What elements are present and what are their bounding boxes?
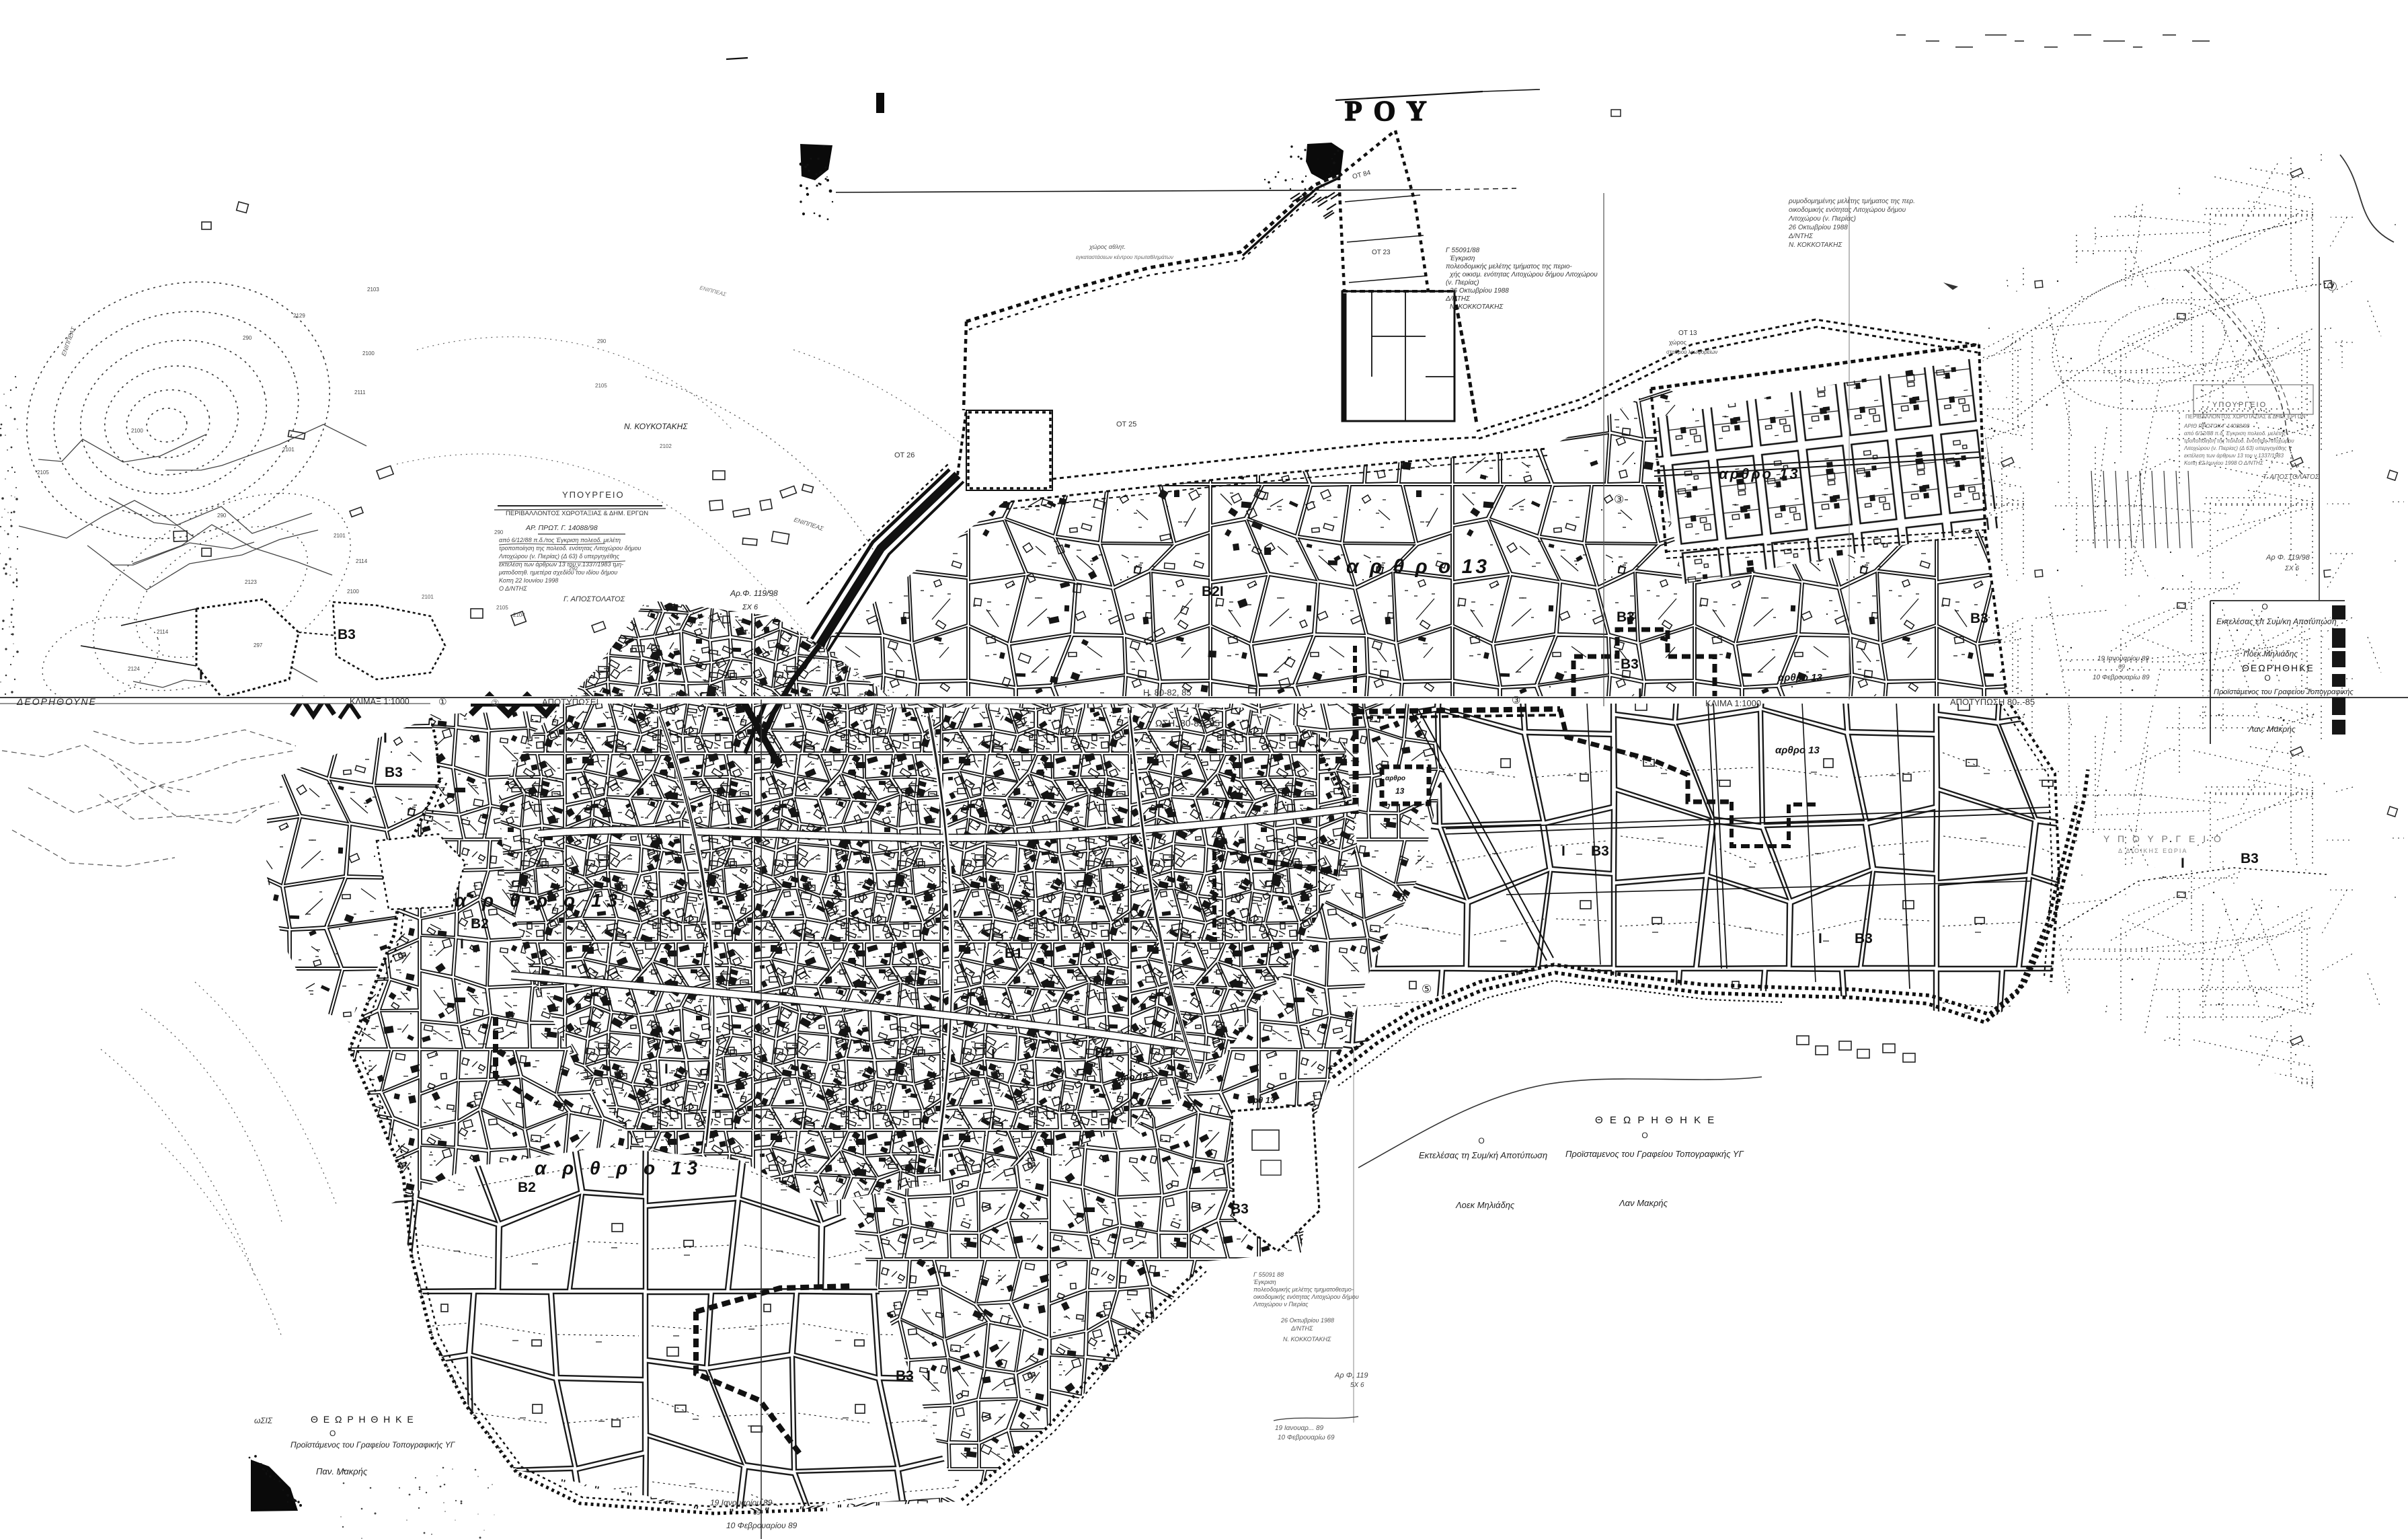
svg-text:2105: 2105: [496, 605, 508, 611]
svg-text:2101: 2101: [282, 447, 295, 453]
svg-text:10 Φεβρουαρίω 69: 10 Φεβρουαρίω 69: [1278, 1433, 1335, 1441]
svg-text:Β3: Β3: [1970, 611, 1988, 626]
svg-text:Ο: Ο: [329, 1429, 336, 1438]
svg-text:Αρ Φ, 119: Αρ Φ, 119: [1334, 1372, 1368, 1380]
svg-text:ΟΤ 26: ΟΤ 26: [894, 451, 915, 459]
svg-text:ΔΕΟΡΗΘΟΥΝΕ: ΔΕΟΡΗΘΟΥΝΕ: [16, 696, 97, 707]
svg-text:2100: 2100: [131, 428, 143, 434]
svg-text:ΟΤ 25: ΟΤ 25: [1116, 420, 1136, 428]
svg-text:Θ Ε Ω Ρ Η Θ Η Κ Ε: Θ Ε Ω Ρ Η Θ Η Κ Ε: [311, 1414, 415, 1425]
svg-text:69: 69: [2118, 663, 2125, 670]
svg-text:Δ/ΝΤΗΣ: Δ/ΝΤΗΣ: [1788, 233, 1814, 240]
svg-text:ΟΤ 13: ΟΤ 13: [1678, 330, 1697, 337]
svg-text:26 Οκτωβρίου 1988: 26 Οκτωβρίου 1988: [1788, 223, 1848, 231]
svg-text:290: 290: [243, 335, 252, 341]
svg-text:ματοδοτηθ. ημετέρα σχεδίου το: ματοδοτηθ. ημετέρα σχεδίου του ιδίου δήμ…: [498, 569, 617, 576]
svg-text:5Χ 6: 5Χ 6: [1350, 1382, 1364, 1389]
svg-text:ΣΧ 6: ΣΧ 6: [742, 603, 759, 611]
svg-text:Η. 80-82, 85: Η. 80-82, 85: [1143, 687, 1192, 698]
svg-text:26 Οκτωβρίου 1988: 26 Οκτωβρίου 1988: [1280, 1317, 1334, 1324]
svg-text:Λοεκ Μηλιάδης: Λοεκ Μηλιάδης: [1455, 1200, 1515, 1210]
svg-text:Β2: Β2: [471, 916, 489, 932]
svg-text:ρυμοδομημένης μελέτης τμήματος: ρυμοδομημένης μελέτης τμήματος της περ.: [1788, 197, 1915, 205]
svg-text:ΑΡ. ΠΡΩΤ. Γ. 14088/98: ΑΡ. ΠΡΩΤ. Γ. 14088/98: [525, 524, 598, 532]
svg-text:19 Ιανουαρ... 89: 19 Ιανουαρ... 89: [1275, 1425, 1324, 1432]
svg-text:Δ ΔΙΟΙΚΗΣ ΕΩΡΙΑ: Δ ΔΙΟΙΚΗΣ ΕΩΡΙΑ: [2118, 848, 2187, 854]
svg-text:αρθρο 13: αρθρο 13: [1719, 465, 1800, 482]
svg-text:Κοπη 22 Ιουνίου 1998: Κοπη 22 Ιουνίου 1998: [499, 577, 558, 584]
svg-text:αρθ 13: αρθ 13: [1247, 1095, 1276, 1105]
svg-text:χώρος αθλητ.: χώρος αθλητ.: [1089, 243, 1126, 250]
svg-text:2100: 2100: [362, 350, 375, 356]
svg-text:Κοπη 22 Ιουνίου 1998 Ο Δ/ΝΤΗΣ: Κοπη 22 Ιουνίου 1998 Ο Δ/ΝΤΗΣ: [2184, 460, 2264, 466]
svg-text:Β3: Β3: [1591, 843, 1609, 859]
svg-text:Προϊσταμενος του Γραφείου Τ: Προϊσταμενος του Γραφείου Τοπογραφικής Υ…: [1565, 1149, 1744, 1159]
svg-text:αρθρο 13: αρθρο 13: [1778, 672, 1823, 683]
svg-text:Β3: Β3: [2241, 851, 2259, 866]
svg-text:χώρος: χώρος: [1669, 339, 1687, 346]
svg-text:Προϊστάμενος του Γραφείου Τοπο: Προϊστάμενος του Γραφείου Τοπογραφικής Υ…: [290, 1440, 456, 1450]
svg-text:Γ 55091 88: Γ 55091 88: [1253, 1271, 1284, 1278]
svg-text:αρθρο 13: αρθρο 13: [1775, 745, 1820, 756]
svg-text:Τ. ΑΠΟΣΤΟΛΑΤΟΣ: Τ. ΑΠΟΣΤΟΛΑΤΟΣ: [2263, 474, 2320, 481]
svg-text:ΩΣΗ. 80-82, 85: ΩΣΗ. 80-82, 85: [1155, 718, 1220, 728]
svg-text:ΠΕΡΙΒΑΛΛΟΝΤΟΣ ΧΩΡΟΤΑΞΙΑΣ & ΔΗΜ: ΠΕΡΙΒΑΛΛΟΝΤΟΣ ΧΩΡΟΤΑΞΙΑΣ & ΔΗΜ. ΕΡΓΩΝ: [2185, 414, 2306, 420]
svg-text:2123: 2123: [245, 579, 257, 585]
svg-text:Αρ Φ. 119/98: Αρ Φ. 119/98: [2265, 554, 2310, 562]
svg-text:Προϊστάμενος του Γραφείου Τοπο: Προϊστάμενος του Γραφείου Τοπογραφικής: [2214, 688, 2354, 696]
svg-text:ΣΧ 6: ΣΧ 6: [2284, 565, 2299, 572]
svg-text:χής οικισμ. ενότητας Λιτοχώρου: χής οικισμ. ενότητας Λιτοχώρου δήμου Λιτ…: [1449, 270, 1598, 278]
svg-text:Ο Δ/ΝΤΗΣ: Ο Δ/ΝΤΗΣ: [499, 585, 527, 592]
svg-text:Β2Ι: Β2Ι: [1202, 584, 1224, 599]
svg-text:2124: 2124: [128, 666, 140, 672]
svg-text:③: ③: [1512, 695, 1520, 706]
svg-text:πολεοδομικής μελέτης τμηματοθε: πολεοδομικής μελέτης τμηματοθεσμο-: [1253, 1286, 1354, 1293]
svg-text:Ι: Ι: [383, 730, 387, 746]
svg-text:ΥΠΟΥΡΓΕΙΟ: ΥΠΟΥΡΓΕΙΟ: [562, 490, 625, 500]
svg-text:Β2: Β2: [518, 1180, 536, 1195]
svg-text:10 Φεβρουαρίω 89: 10 Φεβρουαρίω 89: [2093, 673, 2150, 681]
svg-text:Β3: Β3: [1617, 609, 1635, 625]
svg-text:Β3: Β3: [1231, 1201, 1249, 1217]
svg-text:ΑΠΟΤΥΠΩΣΗ 80-.-85: ΑΠΟΤΥΠΩΣΗ 80-.-85: [1950, 697, 2035, 707]
svg-text:ΟΤ 23: ΟΤ 23: [1372, 249, 1391, 256]
svg-text:Δ/ΝΤΗΣ: Δ/ΝΤΗΣ: [1445, 295, 1471, 303]
svg-text:Ι: Ι: [460, 936, 464, 952]
svg-text:⑦: ⑦: [2327, 280, 2337, 293]
svg-text:Β3: Β3: [896, 1368, 914, 1384]
svg-text:Θ Ε Ω Ρ Η Θ Η Κ Ε: Θ Ε Ω Ρ Η Θ Η Κ Ε: [1595, 1115, 1716, 1126]
svg-text:τροποποίηση της πολεοδ. ενότητ: τροποποίηση της πολεοδ. ενότητας Λιτοχώρ…: [2184, 438, 2294, 444]
svg-text:(ν. Πιερίας): (ν. Πιερίας): [1446, 278, 1479, 287]
svg-text:Β3: Β3: [1855, 931, 1873, 946]
svg-text:2129: 2129: [293, 313, 305, 319]
svg-text:2114: 2114: [157, 629, 169, 635]
svg-text:2100: 2100: [347, 589, 359, 595]
svg-text:③: ③: [1614, 493, 1624, 506]
svg-text:Ι: Ι: [199, 667, 203, 683]
svg-text:69: 69: [753, 1509, 761, 1517]
svg-text:Παν. Μακρής: Παν. Μακρής: [316, 1466, 368, 1476]
svg-text:Ο: Ο: [1478, 1136, 1484, 1146]
svg-text:Β3: Β3: [1621, 656, 1639, 672]
svg-text:②: ②: [491, 698, 500, 708]
svg-text:αρθρο: αρθρο: [1385, 775, 1405, 782]
svg-text:Ι: Ι: [1561, 843, 1565, 859]
svg-text:Ι: Ι: [927, 1368, 931, 1384]
svg-text:Β2: Β2: [1095, 1045, 1113, 1061]
svg-text:ΠΕΡΙΒΑΛΛΟΝΤΟΣ ΧΩΡΟΤΑΞΙΑΣ & ΔΗΜ: ΠΕΡΙΒΑΛΛΟΝΤΟΣ ΧΩΡΟΤΑΞΙΑΣ & ΔΗΜ. ΕΡΓΩΝ: [506, 510, 648, 517]
svg-text:2105: 2105: [37, 470, 49, 476]
svg-text:από 6/12/88 π.δ. Έγκριση πολεο: από 6/12/88 π.δ. Έγκριση πολεοδ. μελέτης: [2184, 430, 2286, 437]
svg-text:13: 13: [1395, 786, 1405, 796]
svg-text:ΚΛΙΜΑΞ 1:1000: ΚΛΙΜΑΞ 1:1000: [350, 697, 410, 706]
svg-text:Ι: Ι: [2181, 856, 2185, 871]
svg-text:26 Οκτωβρίου 1988: 26 Οκτωβρίου 1988: [1449, 287, 1509, 295]
svg-text:α ρ θ ρ ο 13: α ρ θ ρ ο 13: [1346, 556, 1489, 578]
svg-text:Β3: Β3: [385, 765, 403, 780]
svg-text:2102: 2102: [660, 443, 672, 449]
svg-text:από 6/12/88 π.δ./τος Έγκριση π: από 6/12/88 π.δ./τος Έγκριση πολεοδ. μελ…: [499, 537, 621, 543]
svg-text:Λαν Μακρής: Λαν Μακρής: [1619, 1198, 1668, 1208]
svg-text:Λιτοχώρου (ν. Πιερίας): Λιτοχώρου (ν. Πιερίας): [1788, 215, 1856, 223]
svg-text:ΘΕΩΡΗΘΗΚΕ: ΘΕΩΡΗΘΗΚΕ: [2242, 663, 2315, 673]
svg-text:2101: 2101: [334, 533, 346, 539]
svg-text:οικοδομικής ενότητας Λιτοχώρου: οικοδομικής ενότητας Λιτοχώρου δήμου: [1253, 1293, 1359, 1300]
svg-text:290: 290: [217, 513, 227, 519]
svg-text:2103: 2103: [367, 287, 379, 293]
svg-text:Ν. ΚΟΚΚΟΤΑΚΗΣ: Ν. ΚΟΚΚΟΤΑΚΗΣ: [1450, 303, 1504, 311]
svg-text:Ι: Ι: [991, 1047, 995, 1062]
svg-text:Ο: Ο: [2264, 673, 2270, 683]
svg-text:Ν. ΚΟΚΚΟΤΑΚΗΣ: Ν. ΚΟΚΚΟΤΑΚΗΣ: [1283, 1336, 1331, 1343]
svg-text:19 Ιανουαρίου 89: 19 Ιανουαρίου 89: [710, 1498, 773, 1507]
svg-text:Γ 55091/88: Γ 55091/88: [1446, 247, 1480, 254]
svg-text:290: 290: [494, 529, 504, 535]
svg-text:Εκτελέσας τη Συμ/κή Αποτύπω: Εκτελέσας τη Συμ/κή Αποτύπωση: [1419, 1150, 1547, 1160]
svg-text:Υ Π Ο Υ Ρ Γ Ε Ι Ο: Υ Π Ο Υ Ρ Γ Ε Ι Ο: [2103, 833, 2224, 844]
svg-text:19 Ιανουαρίου 89: 19 Ιανουαρίου 89: [2097, 654, 2149, 663]
svg-text:Έγκριση: Έγκριση: [1450, 255, 1475, 262]
svg-text:Ν. ΚΟΚΚΟΤΑΚΗΣ: Ν. ΚΟΚΚΟΤΑΚΗΣ: [1789, 241, 1842, 249]
svg-text:2104: 2104: [513, 612, 525, 618]
svg-text:Αρ.Φ. 119/98: Αρ.Φ. 119/98: [730, 589, 778, 598]
svg-text:290: 290: [597, 338, 607, 344]
svg-text:Ο: Ο: [1641, 1131, 1647, 1140]
svg-text:Β3: Β3: [338, 627, 356, 642]
svg-text:Ποεκ Μηλιάδης: Ποεκ Μηλιάδης: [2243, 649, 2298, 659]
svg-text:πολεοδομικής μελέτης τμήματος: πολεοδομικής μελέτης τμήματος της περιο-: [1446, 262, 1572, 270]
svg-text:αρο 13: αρο 13: [1118, 1072, 1148, 1082]
svg-text:ωΣΙΣ: ωΣΙΣ: [254, 1416, 273, 1425]
svg-text:σταθμού λεωφορείων: σταθμού λεωφορείων: [1666, 349, 1717, 355]
svg-text:①: ①: [438, 696, 447, 707]
svg-text:ΥΠΟΥΡΓΕΙΟ: ΥΠΟΥΡΓΕΙΟ: [2212, 401, 2267, 409]
svg-text:⑤: ⑤: [1422, 983, 1432, 996]
svg-text:Ν. ΚΟΥΚΟΤΑΚΗΣ: Ν. ΚΟΥΚΟΤΑΚΗΣ: [624, 422, 688, 431]
svg-text:Ι: Ι: [664, 1061, 668, 1077]
svg-text:10 Φεβρουαρίου 89: 10 Φεβρουαρίου 89: [726, 1521, 798, 1530]
svg-text:ΑΠΟΤΥΠΩΣΕΙ: ΑΠΟΤΥΠΩΣΕΙ: [542, 697, 598, 707]
svg-text:εγκαταστάσεων κέντρου πρωταθ: εγκαταστάσεων κέντρου πρωταθλημάτων: [1076, 254, 1173, 260]
svg-text:Γ. ΑΠΟΣΤΟΛΑΤΟΣ: Γ. ΑΠΟΣΤΟΛΑΤΟΣ: [564, 595, 625, 603]
svg-text:Ι: Ι: [834, 870, 838, 886]
svg-text:2111: 2111: [354, 389, 366, 396]
svg-text:Έγκριση: Έγκριση: [1253, 1279, 1276, 1285]
svg-text:Ο: Ο: [2261, 602, 2267, 611]
svg-text:Ι: Ι: [1638, 686, 1642, 702]
svg-text:α ρ θ ρ ο 13: α ρ θ ρ ο 13: [535, 1158, 703, 1178]
svg-text:Λιτοχώρου (ν. Πιερίας) (Δ 63): Λιτοχώρου (ν. Πιερίας) (Δ 63) δ υπεργηγέ…: [498, 553, 620, 560]
svg-text:Λαν. Μακρής: Λαν. Μακρής: [2248, 724, 2296, 734]
svg-text:τροποποίηση της πολεοδ. ενότητ: τροποποίηση της πολεοδ. ενότητας Λιτοχώρ…: [499, 545, 642, 552]
svg-text:Εκτελέσας επ Συμ/κη Αποτύπωση: Εκτελέσας επ Συμ/κη Αποτύπωση: [2216, 617, 2337, 626]
svg-text:2105: 2105: [595, 383, 607, 389]
svg-text:Β1: Β1: [1005, 946, 1023, 961]
svg-text:ΚΛΙΜΑ 1:1000: ΚΛΙΜΑ 1:1000: [1705, 698, 1761, 708]
svg-text:297: 297: [254, 642, 263, 648]
svg-text:εκτέλεση των άρθρων 13 του ν.1: εκτέλεση των άρθρων 13 του ν.1337/1983: [2184, 453, 2284, 459]
svg-text:ΑΡΙΘ ΠΡΩΤΟΚ Γ 14088/98: ΑΡΙΘ ΠΡΩΤΟΚ Γ 14088/98: [2183, 423, 2250, 429]
svg-text:ΡΟΥ: ΡΟΥ: [1345, 96, 1438, 127]
svg-text:2101: 2101: [422, 594, 434, 600]
svg-text:2114: 2114: [356, 558, 368, 564]
svg-text:Λιτοχώρου ν Πιερίας: Λιτοχώρου ν Πιερίας: [1253, 1301, 1309, 1308]
svg-text:Ι: Ι: [1818, 931, 1822, 946]
svg-text:Λιτοχώρου (ν. Πιερίας) (Δ 63): Λιτοχώρου (ν. Πιερίας) (Δ 63) υπεργηγέθη…: [2183, 445, 2287, 451]
svg-text:α ρ θ ρ ο 13: α ρ θ ρ ο 13: [455, 890, 623, 911]
svg-text:Δ/ΝΤΗΣ: Δ/ΝΤΗΣ: [1290, 1325, 1313, 1332]
svg-text:οικοδομικής ενότητας Λιτοχώρου: οικοδομικής ενότητας Λιτοχώρου δήμου: [1789, 206, 1906, 214]
